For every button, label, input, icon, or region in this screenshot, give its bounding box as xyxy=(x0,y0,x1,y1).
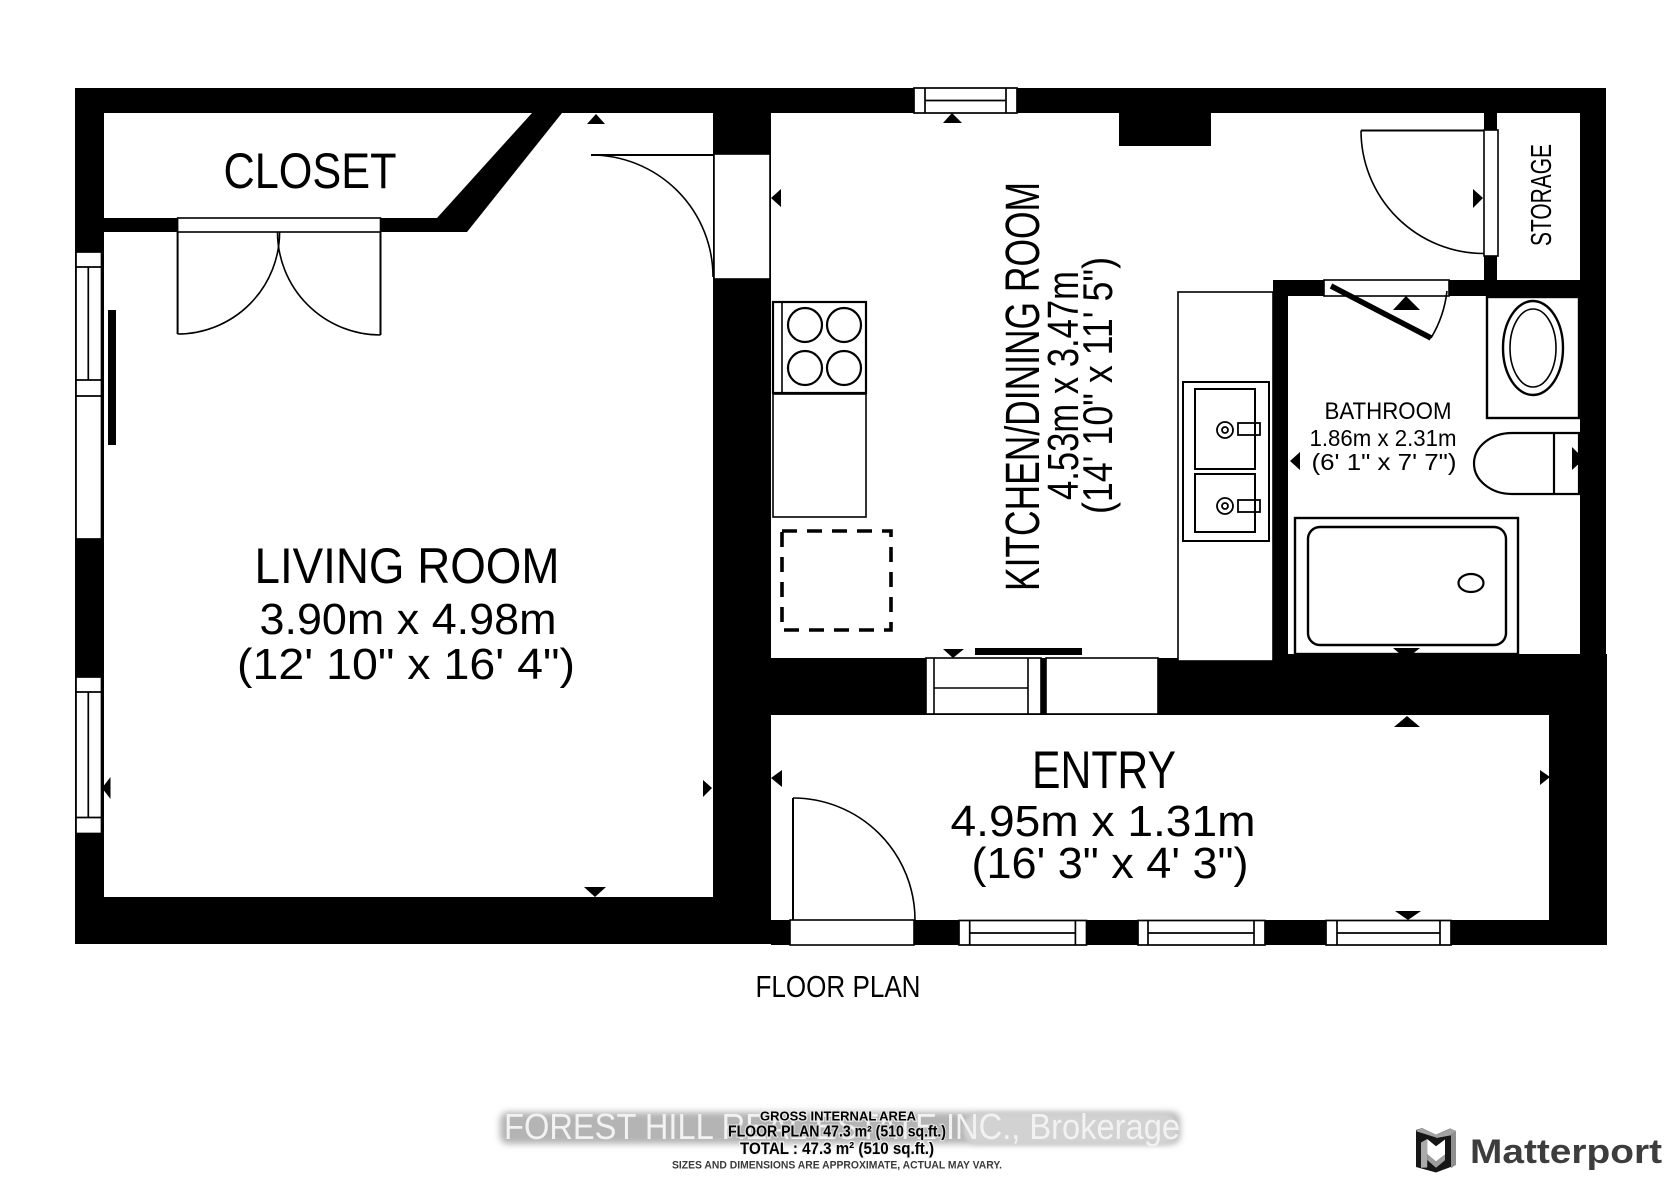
svg-text:1.86m x 2.31m: 1.86m x 2.31m xyxy=(1310,425,1457,451)
svg-text:(16' 3" x 4' 3"): (16' 3" x 4' 3") xyxy=(972,839,1249,888)
svg-text:TOTAL : 47.3 m² (510 sq.ft.): TOTAL : 47.3 m² (510 sq.ft.) xyxy=(740,1139,934,1158)
svg-text:BATHROOM: BATHROOM xyxy=(1325,398,1452,425)
svg-text:CLOSET: CLOSET xyxy=(224,143,397,199)
svg-text:GROSS INTERNAL AREA: GROSS INTERNAL AREA xyxy=(760,1110,916,1124)
svg-text:LIVING ROOM: LIVING ROOM xyxy=(255,538,560,594)
svg-text:(12' 10" x 16' 4"): (12' 10" x 16' 4") xyxy=(237,640,575,689)
svg-text:STORAGE: STORAGE xyxy=(1526,144,1558,246)
svg-text:(6' 1" x 7' 7"): (6' 1" x 7' 7") xyxy=(1312,449,1457,475)
svg-text:SIZES AND DIMENSIONS ARE APPRO: SIZES AND DIMENSIONS ARE APPROXIMATE, AC… xyxy=(672,1160,1002,1172)
svg-text:Matterport: Matterport xyxy=(1470,1133,1662,1171)
svg-text:FLOOR PLAN 47.3 m² (510 sq.ft.: FLOOR PLAN 47.3 m² (510 sq.ft.) xyxy=(728,1124,946,1141)
svg-text:ENTRY: ENTRY xyxy=(1032,741,1176,800)
svg-text:3.90m x 4.98m: 3.90m x 4.98m xyxy=(260,595,557,644)
svg-text:(14' 10" x 11' 5"): (14' 10" x 11' 5") xyxy=(1074,257,1121,514)
svg-text:FLOOR PLAN: FLOOR PLAN xyxy=(756,969,921,1004)
